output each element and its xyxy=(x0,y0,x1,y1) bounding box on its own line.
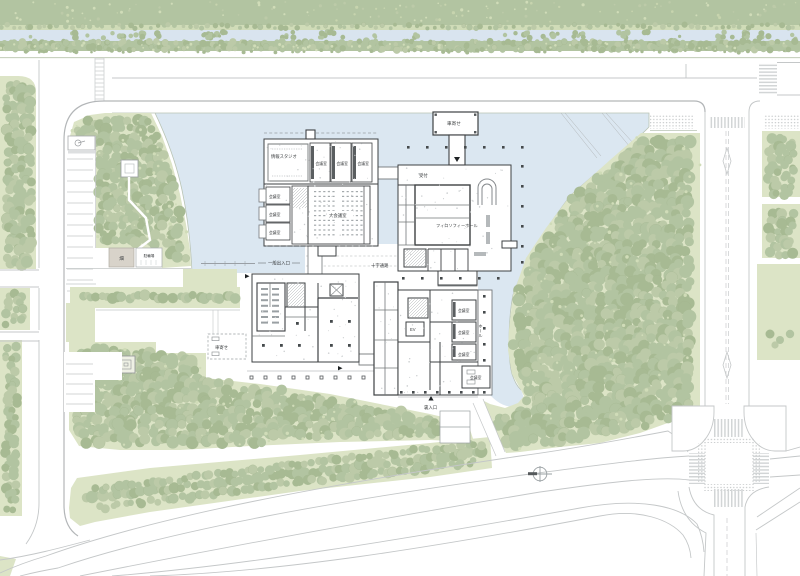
svg-text:会議室: 会議室 xyxy=(470,375,482,380)
svg-text:会議室: 会議室 xyxy=(269,212,281,217)
svg-text:会議室: 会議室 xyxy=(458,352,470,357)
svg-text:受付: 受付 xyxy=(419,172,428,179)
svg-text:大会議室: 大会議室 xyxy=(329,212,347,219)
svg-text:情報スタジオ: 情報スタジオ xyxy=(271,153,297,160)
svg-text:会議室: 会議室 xyxy=(337,161,349,166)
svg-text:駐輪場: 駐輪場 xyxy=(144,253,155,258)
svg-text:裏入口: 裏入口 xyxy=(424,404,437,411)
svg-text:十字通路: 十字通路 xyxy=(371,262,389,269)
svg-text:会議室: 会議室 xyxy=(458,330,470,335)
svg-text:会議室: 会議室 xyxy=(269,194,281,199)
svg-text:会議室: 会議室 xyxy=(458,308,470,313)
svg-text:EV: EV xyxy=(410,327,416,332)
svg-text:フィロソフィーホール: フィロソフィーホール xyxy=(436,223,478,228)
svg-text:会議室: 会議室 xyxy=(316,161,328,166)
svg-text:車寄せ: 車寄せ xyxy=(447,120,461,127)
svg-text:畑: 畑 xyxy=(119,255,124,262)
svg-text:車寄せ: 車寄せ xyxy=(215,344,229,351)
svg-text:会議室: 会議室 xyxy=(358,161,370,166)
svg-text:会議室: 会議室 xyxy=(269,230,281,235)
svg-text:ホール: ホール xyxy=(479,324,484,338)
svg-text:一般出入口: 一般出入口 xyxy=(268,260,290,267)
